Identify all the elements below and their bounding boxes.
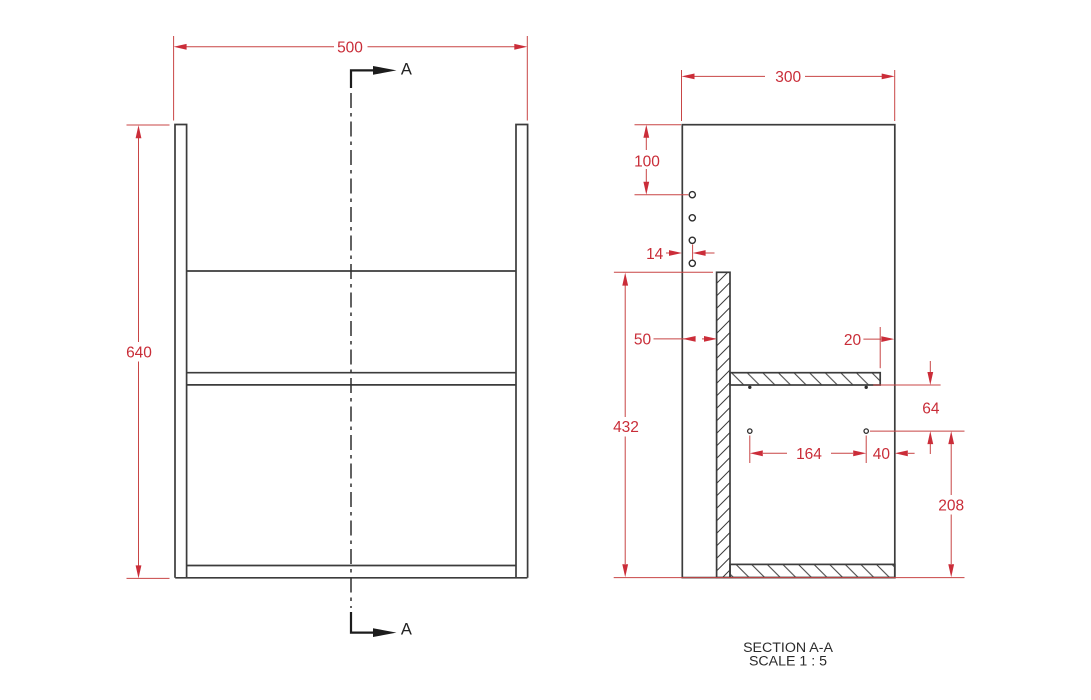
svg-text:50: 50 [634,332,652,349]
svg-text:A: A [401,620,412,638]
svg-text:A: A [401,60,412,78]
svg-text:208: 208 [938,498,964,515]
svg-text:640: 640 [126,344,152,361]
svg-text:20: 20 [844,332,862,349]
svg-text:14: 14 [646,246,664,263]
svg-text:40: 40 [873,446,891,463]
svg-text:500: 500 [337,40,363,57]
svg-text:164: 164 [796,446,822,463]
svg-text:SCALE 1 : 5: SCALE 1 : 5 [749,654,827,670]
svg-text:100: 100 [634,153,660,170]
svg-text:300: 300 [775,69,801,86]
svg-text:64: 64 [922,401,940,418]
svg-text:432: 432 [613,419,639,436]
